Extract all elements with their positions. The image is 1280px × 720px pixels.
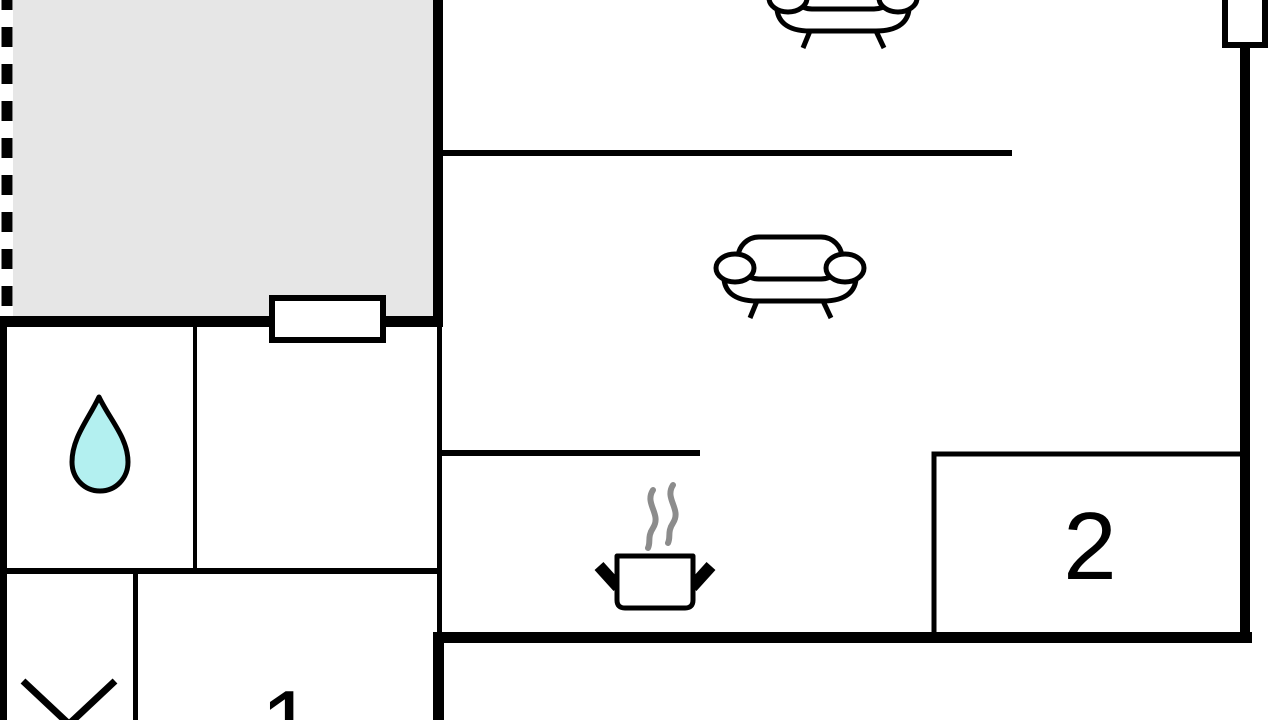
wall-bottom-left-vertical (433, 632, 444, 720)
cooking-pot-icon (599, 556, 711, 608)
sofa-icon (769, 0, 917, 48)
window-icon (1225, 0, 1265, 45)
window-icon (272, 298, 383, 340)
wall-bathroom-bottom (0, 568, 440, 574)
floor-plan-drawing (0, 0, 1280, 720)
wall-hall-left (437, 327, 442, 633)
water-drop-icon (72, 397, 128, 491)
floor-plan: 2 1 (0, 0, 1280, 720)
shower-icon (23, 681, 115, 720)
sofa-icon (716, 237, 864, 318)
wall-living-divider (443, 150, 1012, 156)
wall-kitchen-divider (440, 450, 700, 456)
steam-icon (648, 485, 676, 548)
wall-bathroom-divider (193, 327, 197, 568)
wall-terrace-right (433, 0, 443, 327)
terrace-area (13, 0, 438, 318)
bedroom2-outline (934, 454, 1246, 639)
wall-bedroom1-left (133, 574, 138, 720)
wall-left-outer (0, 327, 7, 720)
